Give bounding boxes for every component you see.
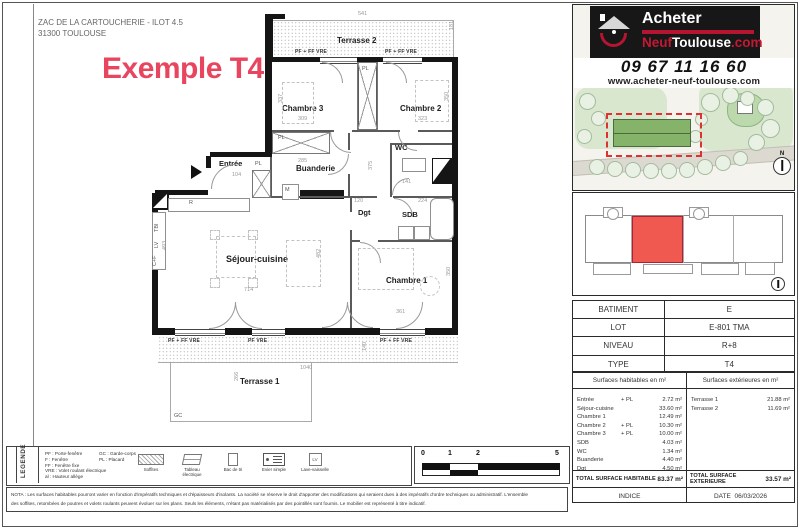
- legend-glyph: [228, 453, 238, 466]
- soffites-icon: [135, 452, 167, 466]
- plan-annotation: PL: [362, 66, 369, 72]
- nota-line-1: NOTA : Les surfaces habitables pourront …: [11, 490, 563, 499]
- hab-rows: Entrée+ PL2.72 m²Séjour-cuisine33.60 m²C…: [573, 390, 686, 470]
- logo-toulouse: Toulouse: [672, 35, 731, 50]
- duct-notch: [433, 159, 450, 182]
- partition: [390, 143, 392, 197]
- surface-plus: + PL: [621, 422, 639, 431]
- dimension-label: 104: [232, 172, 241, 178]
- plan-sheet: ZAC DE LA CARTOUCHERIE - ILOT 4.5 31300 …: [0, 0, 800, 529]
- agency-logo: Acheter NeufToulouse.com: [590, 6, 760, 58]
- lave-vaisselle-icon: LV: [299, 452, 331, 466]
- legend-item: Tableau électrique: [176, 452, 208, 478]
- hab-header: Surfaces habitables en m²: [573, 373, 686, 389]
- door-arc: [386, 62, 407, 83]
- logo-neuf: Neuf: [642, 35, 672, 50]
- surface-value: 11.69 m²: [743, 405, 790, 414]
- plan-annotation: LV: [154, 242, 160, 248]
- surface-row: Buanderie4.40 m²: [573, 456, 686, 465]
- legend-caption: Evier simple: [258, 468, 290, 473]
- date-label: DATE: [714, 493, 731, 500]
- compass-needle: [781, 160, 783, 171]
- tree-icon: [643, 163, 659, 179]
- tree-icon: [733, 151, 748, 166]
- surface-plus: [621, 405, 639, 414]
- legend-abbr: GC : Garde-corps: [99, 451, 136, 457]
- balcony: [643, 264, 693, 274]
- table-row: TYPET4: [573, 356, 794, 373]
- surface-value: 2.72 m²: [639, 396, 682, 405]
- legend-glyph: [138, 454, 164, 465]
- partition: [352, 130, 400, 132]
- website-link[interactable]: www.acheter-neuf-toulouse.com: [574, 76, 794, 87]
- closet-placard: [357, 62, 378, 130]
- dimension-label: 224: [418, 198, 427, 204]
- surface-name: Terrasse 1: [691, 396, 743, 405]
- wall: [265, 14, 285, 19]
- surface-plus: + PL: [621, 430, 639, 439]
- tree-icon: [748, 134, 765, 151]
- surface-name: Terrasse 2: [691, 405, 743, 414]
- info-value: E-801 TMA: [665, 319, 794, 336]
- scale-segment: [478, 463, 560, 470]
- tree-icon: [701, 93, 720, 112]
- legend-abbreviations-1: PF : Porte-fenêtreF : FenêtreFF : Fenêtr…: [45, 451, 106, 480]
- table-row: LOTE-801 TMA: [573, 319, 794, 337]
- surface-value: 10.00 m²: [639, 430, 682, 439]
- tableau-lectrique-icon: [176, 452, 208, 466]
- legend-item: Evier simple: [258, 452, 290, 478]
- legend-abbr: PL : Placard: [99, 457, 136, 463]
- stair-icon: [693, 208, 705, 220]
- door-arc: [322, 302, 348, 328]
- surface-plus: + PL: [621, 396, 639, 405]
- tree-icon: [577, 129, 592, 144]
- door-arc: [235, 302, 262, 329]
- tree-icon: [579, 93, 596, 110]
- indice-cell: INDICE: [573, 487, 686, 504]
- surface-name: Chambre 2: [577, 422, 621, 431]
- surface-name: Chambre 1: [577, 413, 621, 422]
- dimension-label: 140: [362, 342, 368, 351]
- legend-title: LEGENDE: [20, 444, 27, 478]
- partition: [378, 240, 452, 242]
- bac-de-tri-icon: [217, 452, 249, 466]
- window-type-label: PF VRE: [248, 338, 267, 344]
- info-label: TYPE: [573, 356, 665, 373]
- dimension-label: 309: [298, 116, 307, 122]
- info-label: NIVEAU: [573, 337, 665, 354]
- scale-tick: 2: [476, 450, 480, 457]
- total-hab-value: 83.37 m²: [657, 476, 683, 483]
- dimension-label: 181: [449, 21, 455, 30]
- logo-red-bar: [642, 30, 754, 34]
- total-ext: TOTAL SURFACE EXTERIEURE 33.57 m²: [687, 470, 794, 487]
- furniture: [358, 248, 414, 290]
- wall: [265, 62, 272, 157]
- surface-plus: [621, 439, 639, 448]
- room-terrasse2: Terrasse 2: [337, 36, 376, 45]
- furniture: [210, 278, 220, 288]
- surface-row: Chambre 3+ PL10.00 m²: [573, 430, 686, 439]
- dimension-label: 120: [354, 198, 363, 204]
- door-arc: [394, 198, 413, 217]
- tree-icon: [722, 87, 739, 104]
- legend: LEGENDE PF : Porte-fenêtreF : FenêtreFF …: [6, 446, 412, 486]
- room-dgt: Dgt: [358, 208, 371, 217]
- plan-annotation: TBI: [154, 223, 160, 232]
- legend-glyph: [263, 453, 285, 466]
- wall: [225, 328, 252, 335]
- entrance-arrow-icon: [191, 165, 202, 179]
- surface-name: Entrée: [577, 396, 621, 405]
- surface-value: 1.34 m²: [639, 448, 682, 457]
- partition: [348, 174, 350, 196]
- date-cell: DATE 06/03/2026: [687, 487, 794, 504]
- window: [175, 329, 225, 336]
- wall: [265, 14, 273, 62]
- logo-acheter: Acheter: [642, 10, 702, 28]
- fixture: [168, 198, 250, 212]
- duct-notch: [153, 194, 167, 208]
- plan-annotation: C+F: [152, 255, 158, 266]
- tree-icon: [757, 99, 774, 116]
- surface-row: SDB4.03 m²: [573, 439, 686, 448]
- table-row: NIVEAUR+8: [573, 337, 794, 355]
- surface-value: 12.49 m²: [639, 413, 682, 422]
- info-label: LOT: [573, 319, 665, 336]
- balcony: [745, 262, 775, 275]
- surface-value: 10.30 m²: [639, 422, 682, 431]
- surface-value: 4.03 m²: [639, 439, 682, 448]
- scale-segment: [450, 470, 478, 476]
- surface-row: Terrasse 121.88 m²: [687, 396, 794, 405]
- legend-glyph: LV: [309, 453, 322, 466]
- furniture: [248, 230, 258, 240]
- plan-annotation: PL: [278, 135, 285, 141]
- tree-icon: [591, 111, 606, 126]
- dimension-label: 285: [298, 158, 307, 164]
- legend-item: Soffites: [135, 452, 167, 478]
- surface-name: Chambre 3: [577, 430, 621, 439]
- wall: [285, 328, 380, 335]
- scale-tick: 5: [555, 450, 559, 457]
- ext-header: Surfaces extérieures en m²: [687, 373, 794, 389]
- logo-line2: NeufToulouse.com: [642, 35, 763, 50]
- balcony: [701, 263, 739, 275]
- dimension-label: 493: [162, 241, 168, 250]
- surface-name: Séjour-cuisine: [577, 405, 621, 414]
- legend-title-cell: LEGENDE: [16, 447, 39, 483]
- window-type-label: PF + FF VRE: [385, 49, 417, 55]
- dimension-label: 714: [244, 287, 253, 293]
- surface-row: Chambre 112.49 m²: [573, 413, 686, 422]
- terrace1-hatch-band: [158, 336, 458, 363]
- plan-annotation: M: [285, 187, 290, 193]
- tree-icon: [679, 162, 695, 178]
- dimension-label: 141: [402, 179, 411, 185]
- surface-plus: [621, 456, 639, 465]
- dimension-label: 361: [396, 309, 405, 315]
- bathtub: [430, 198, 454, 240]
- surface-name: WC: [577, 448, 621, 457]
- dimension-label: 337: [278, 94, 284, 103]
- legend-caption: Lave-vaisselle: [299, 468, 331, 473]
- scale-tick: 1: [448, 450, 452, 457]
- surface-name: Buanderie: [577, 456, 621, 465]
- surfaces-table: Surfaces habitables en m² Surfaces extér…: [572, 372, 795, 503]
- dimension-label: 375: [368, 161, 374, 170]
- table-row: BATIMENTE: [573, 301, 794, 319]
- room-terrasse1: Terrasse 1: [240, 377, 279, 386]
- wall: [152, 328, 175, 335]
- dimension-label: 266: [234, 372, 240, 381]
- window-type-label: PF + FF VRE: [168, 338, 200, 344]
- window: [380, 329, 425, 336]
- tree-icon: [715, 155, 731, 171]
- contact-block: 09 67 11 16 60 www.acheter-neuf-toulouse…: [574, 58, 794, 88]
- plan-annotation: R: [189, 200, 193, 206]
- partition: [418, 130, 452, 132]
- surface-row: WC1.34 m²: [573, 448, 686, 457]
- logo-com: .com: [731, 35, 763, 50]
- door-arc: [330, 132, 351, 153]
- furniture: [210, 230, 220, 240]
- compass-needle: [777, 280, 779, 288]
- scale-bar: 0125: [414, 446, 570, 484]
- legend-caption: Tableau électrique: [176, 468, 208, 478]
- tree-icon: [661, 163, 677, 179]
- fixture: [414, 226, 430, 240]
- total-hab: TOTAL SURFACE HABITABLE 83.37 m²: [573, 470, 686, 487]
- surface-row: Entrée+ PL2.72 m²: [573, 396, 686, 405]
- door-arc: [396, 302, 423, 329]
- keyplan-building-outline: [585, 215, 783, 263]
- plan-annotation: PL: [255, 161, 262, 167]
- lot-info-table: BATIMENTELOTE-801 TMANIVEAUR+8TYPET4: [572, 300, 795, 372]
- info-label: BATIMENT: [573, 301, 665, 318]
- chair: [420, 276, 440, 296]
- dimension-label: 323: [418, 116, 427, 122]
- legend-abbreviations-2: GC : Garde-corpsPL : Placard: [99, 451, 136, 463]
- surface-plus: [621, 448, 639, 457]
- total-hab-label: TOTAL SURFACE HABITABLE: [576, 476, 657, 482]
- dimension-label: 350: [444, 92, 450, 101]
- furniture: [216, 236, 256, 278]
- tree-icon: [589, 159, 605, 175]
- tree-icon: [697, 159, 713, 175]
- surface-row: Terrasse 211.69 m²: [687, 405, 794, 414]
- surface-row: Séjour-cuisine33.60 m²: [573, 405, 686, 414]
- floor-key-plan: [572, 192, 795, 296]
- tree-icon: [761, 119, 780, 138]
- window: [252, 329, 285, 336]
- keyplan-partition: [733, 215, 734, 263]
- fixture: [402, 158, 426, 172]
- scale-tick: 0: [421, 450, 425, 457]
- wall: [425, 328, 458, 335]
- floor-plan: Terrasse 2 Chambre 3 Chambre 2 Buanderie…: [0, 0, 568, 446]
- legend-icons: SoffitesTableau électriqueBac de triEvie…: [135, 452, 331, 478]
- legend-glyph: [182, 454, 202, 465]
- window-type-label: PF + FF VRE: [295, 49, 327, 55]
- total-ext-label: TOTAL SURFACE EXTERIEURE: [690, 473, 765, 485]
- surface-plus: [621, 413, 639, 422]
- dimension-label: 350: [446, 267, 452, 276]
- nota-line-2: des soffites, retombées de poutres et vo…: [11, 499, 563, 508]
- building-highlight-outline: [606, 113, 702, 157]
- surface-value: 33.60 m²: [639, 405, 682, 414]
- evier-simple-icon: [258, 452, 290, 466]
- legend-item: LVLave-vaisselle: [299, 452, 331, 478]
- tree-icon: [607, 161, 623, 177]
- wall: [206, 156, 211, 168]
- plan-annotation: GC: [174, 413, 182, 419]
- keyplan-compass-icon: [771, 277, 785, 291]
- stair-icon: [607, 208, 619, 220]
- surface-row: Chambre 2+ PL10.30 m²: [573, 422, 686, 431]
- terrace1-area: [170, 362, 312, 422]
- surface-value: 4.40 m²: [639, 456, 682, 465]
- dimension-label: 541: [358, 11, 367, 17]
- partition: [350, 198, 352, 212]
- date-value: 06/03/2026: [734, 493, 767, 500]
- house-arc-icon: [600, 33, 627, 47]
- ext-rows: Terrasse 121.88 m²Terrasse 211.69 m²: [687, 390, 794, 470]
- dimension-label: 482: [316, 249, 322, 258]
- door-arc: [209, 302, 236, 329]
- nota-disclaimer: NOTA : Les surfaces habitables pourront …: [6, 487, 568, 512]
- legend-caption: Bac de tri: [217, 468, 249, 473]
- wall: [210, 152, 270, 157]
- dimension-label: 1040: [300, 365, 312, 371]
- tree-icon: [740, 91, 755, 106]
- total-ext-value: 33.57 m²: [765, 476, 791, 483]
- north-compass-icon: N: [773, 157, 791, 175]
- legend-item: Bac de tri: [217, 452, 249, 478]
- legend-caption: Soffites: [135, 468, 167, 473]
- surface-value: 21.88 m²: [743, 396, 790, 405]
- wall: [452, 57, 458, 335]
- house-dot-icon: [612, 30, 616, 34]
- house-roof-icon: [598, 16, 630, 29]
- closet-placard: [252, 170, 271, 198]
- info-value: R+8: [665, 337, 794, 354]
- phone-number[interactable]: 09 67 11 16 60: [574, 58, 794, 76]
- scale-segment: [422, 463, 450, 470]
- highlighted-unit[interactable]: [632, 216, 683, 263]
- door-arc: [322, 62, 343, 83]
- info-value: E: [665, 301, 794, 318]
- wall: [267, 57, 320, 62]
- fixture: [398, 226, 414, 240]
- legend-abbr: al : Hauteur allège: [45, 474, 106, 480]
- north-label: N: [780, 151, 784, 157]
- partition: [390, 143, 452, 145]
- furniture: [286, 240, 321, 287]
- window-type-label: PF + FF VRE: [380, 338, 412, 344]
- surface-name: SDB: [577, 439, 621, 448]
- keyplan-partition: [683, 215, 684, 263]
- balcony: [593, 263, 631, 275]
- info-value: T4: [665, 356, 794, 373]
- door-arc: [328, 154, 349, 175]
- tree-icon: [625, 162, 641, 178]
